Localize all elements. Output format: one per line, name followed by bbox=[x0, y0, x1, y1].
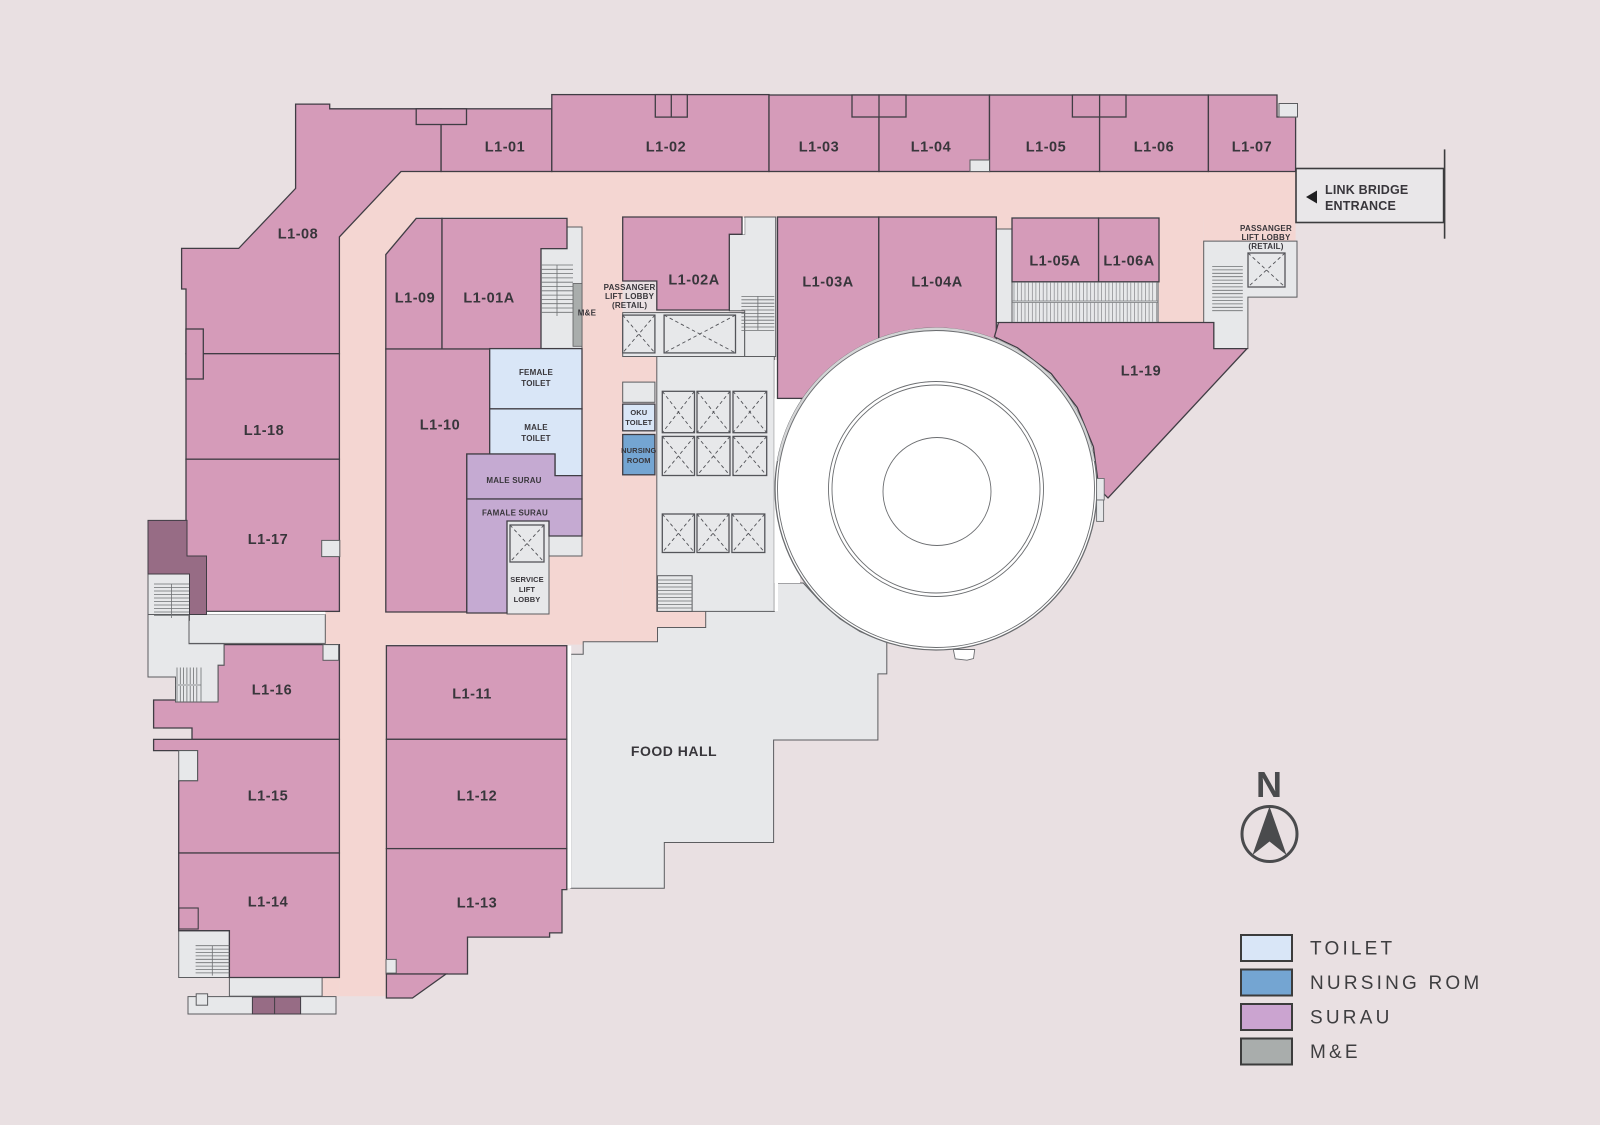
svg-text:NURSING ROM: NURSING ROM bbox=[1310, 973, 1482, 994]
svg-text:L1-04A: L1-04A bbox=[911, 275, 962, 291]
svg-text:FEMALE: FEMALE bbox=[519, 368, 554, 377]
svg-text:L1-13: L1-13 bbox=[457, 896, 497, 912]
svg-text:LINK BRIDGE: LINK BRIDGE bbox=[1325, 183, 1408, 197]
svg-text:L1-05: L1-05 bbox=[1026, 140, 1066, 156]
svg-text:L1-04: L1-04 bbox=[911, 140, 951, 156]
svg-text:MALE SURAU: MALE SURAU bbox=[486, 476, 541, 485]
svg-text:N: N bbox=[1256, 764, 1282, 805]
svg-text:LIFT LOBBY: LIFT LOBBY bbox=[1241, 233, 1291, 242]
svg-text:PASSANGER: PASSANGER bbox=[604, 283, 656, 292]
svg-text:L1-15: L1-15 bbox=[248, 789, 288, 805]
svg-text:L1-09: L1-09 bbox=[395, 291, 435, 307]
svg-text:L1-18: L1-18 bbox=[244, 423, 284, 439]
svg-text:MALE: MALE bbox=[524, 423, 548, 432]
svg-text:(RETAIL): (RETAIL) bbox=[1248, 242, 1283, 251]
svg-text:L1-02A: L1-02A bbox=[668, 273, 719, 289]
svg-text:L1-02: L1-02 bbox=[646, 140, 686, 156]
svg-text:L1-11: L1-11 bbox=[452, 687, 492, 703]
svg-text:TOILET: TOILET bbox=[1310, 939, 1395, 960]
svg-text:L1-06A: L1-06A bbox=[1103, 254, 1154, 270]
svg-text:(RETAIL): (RETAIL) bbox=[612, 301, 647, 310]
svg-text:L1-03A: L1-03A bbox=[802, 275, 853, 291]
svg-text:L1-08: L1-08 bbox=[278, 227, 318, 243]
svg-text:TOILET: TOILET bbox=[625, 418, 652, 427]
svg-text:L1-10: L1-10 bbox=[420, 418, 460, 434]
svg-text:L1-03: L1-03 bbox=[799, 140, 839, 156]
svg-text:SERVICE: SERVICE bbox=[510, 575, 544, 584]
svg-text:L1-16: L1-16 bbox=[252, 683, 292, 699]
svg-text:LIFT LOBBY: LIFT LOBBY bbox=[605, 292, 655, 301]
svg-text:PASSANGER: PASSANGER bbox=[1240, 224, 1292, 233]
svg-text:L1-06: L1-06 bbox=[1134, 140, 1174, 156]
svg-text:FAMALE SURAU: FAMALE SURAU bbox=[482, 509, 548, 518]
svg-text:M&E: M&E bbox=[1310, 1042, 1361, 1063]
svg-text:L1-12: L1-12 bbox=[457, 789, 497, 805]
svg-text:FOOD HALL: FOOD HALL bbox=[631, 743, 717, 759]
svg-text:SURAU: SURAU bbox=[1310, 1008, 1393, 1029]
svg-text:LIFT: LIFT bbox=[519, 585, 536, 594]
svg-text:TOILET: TOILET bbox=[521, 379, 551, 388]
svg-text:L1-01: L1-01 bbox=[485, 140, 525, 156]
svg-text:L1-01A: L1-01A bbox=[463, 291, 514, 307]
svg-text:ROOM: ROOM bbox=[627, 456, 651, 465]
svg-text:NURSING: NURSING bbox=[621, 446, 656, 455]
svg-text:L1-07: L1-07 bbox=[1232, 140, 1272, 156]
svg-text:L1-05A: L1-05A bbox=[1029, 254, 1080, 270]
svg-text:ENTRANCE: ENTRANCE bbox=[1325, 199, 1396, 213]
svg-text:LOBBY: LOBBY bbox=[514, 595, 541, 604]
svg-text:OKU: OKU bbox=[630, 408, 647, 417]
svg-text:TOILET: TOILET bbox=[521, 434, 551, 443]
svg-text:L1-17: L1-17 bbox=[248, 532, 288, 548]
svg-text:M&E: M&E bbox=[578, 309, 597, 318]
svg-text:L1-19: L1-19 bbox=[1121, 364, 1161, 380]
svg-text:L1-14: L1-14 bbox=[248, 895, 288, 911]
